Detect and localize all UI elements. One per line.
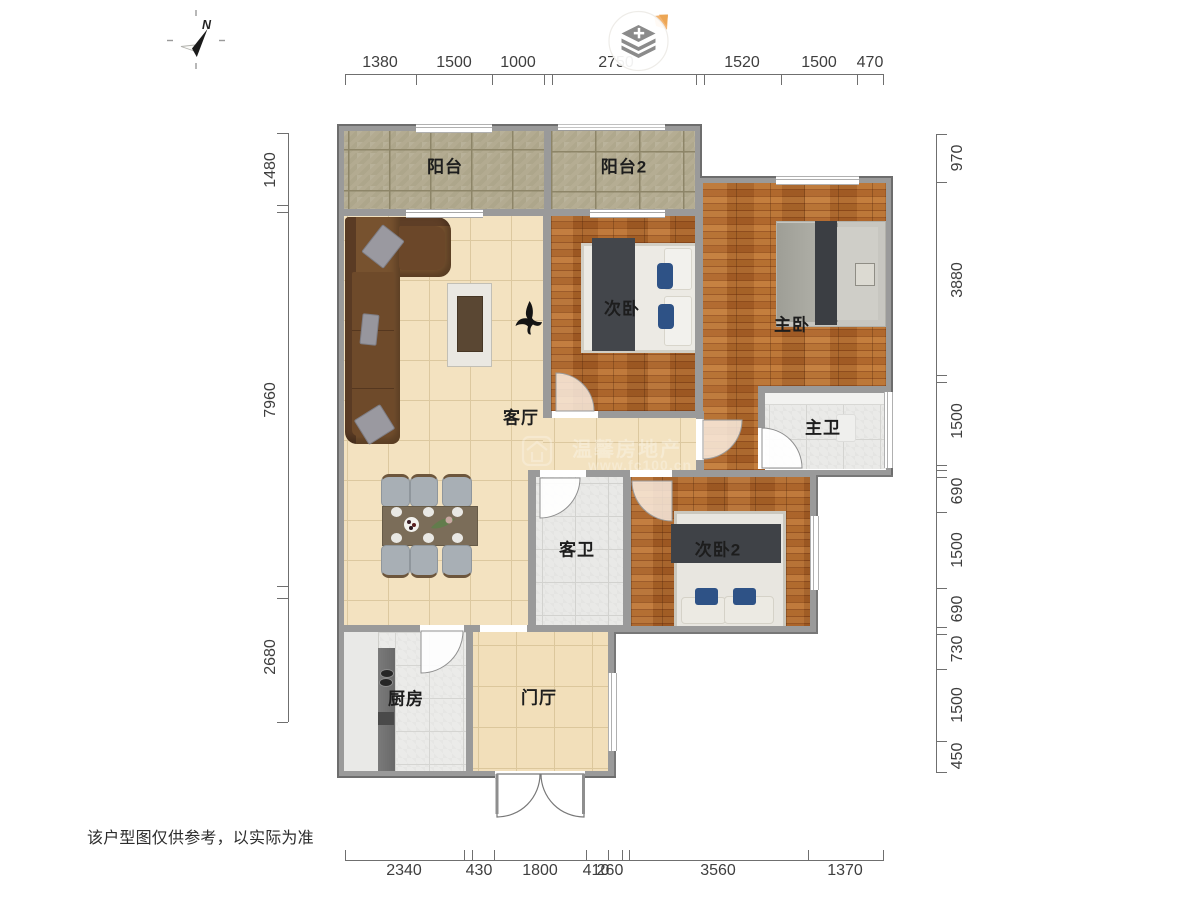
svg-text:N: N xyxy=(202,18,212,32)
